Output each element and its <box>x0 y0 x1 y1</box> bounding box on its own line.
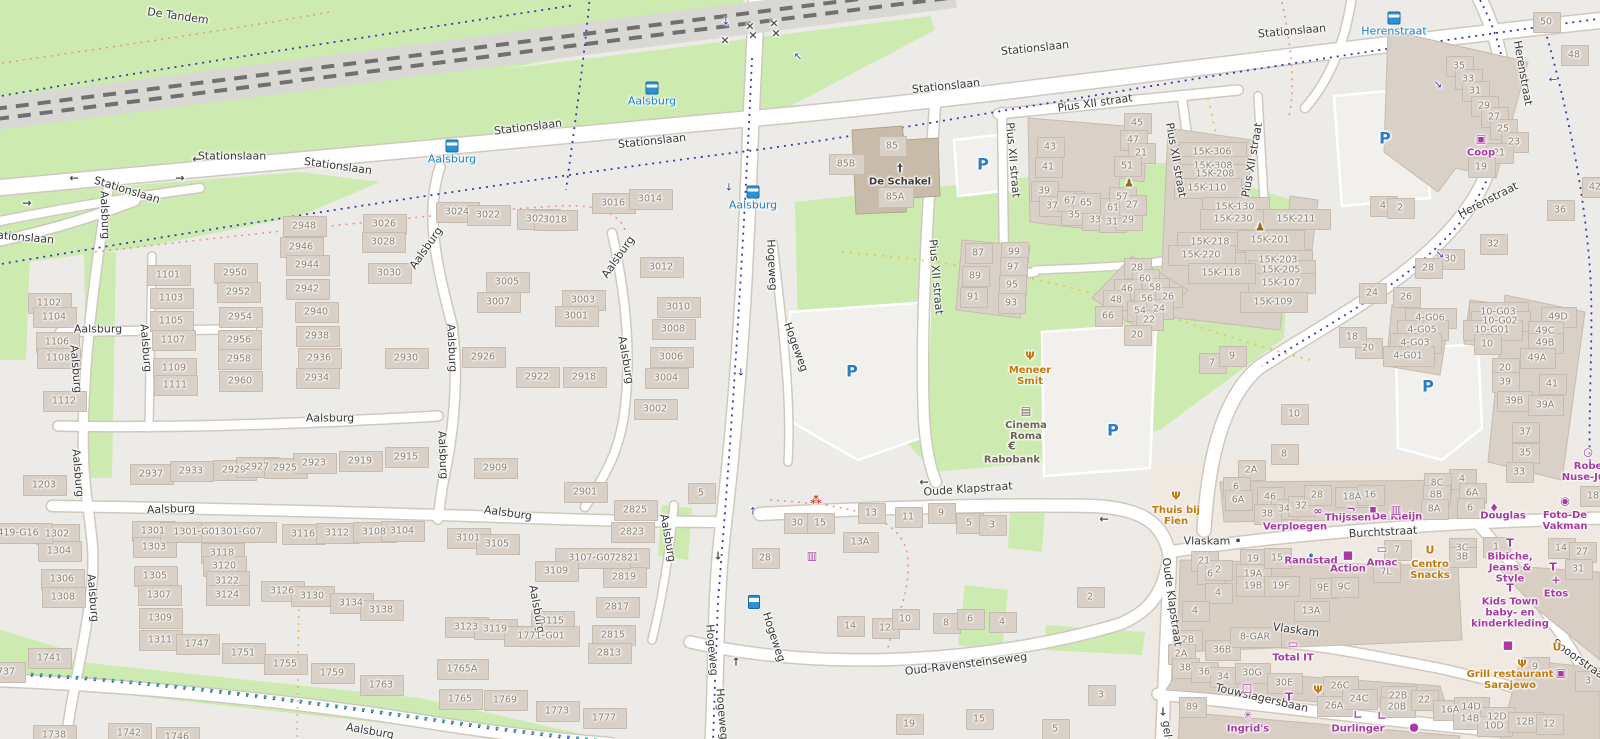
map-canvas <box>0 0 1600 739</box>
osm-map-viewport[interactable]: De TandemStationslaanStationslaanStation… <box>0 0 1600 739</box>
